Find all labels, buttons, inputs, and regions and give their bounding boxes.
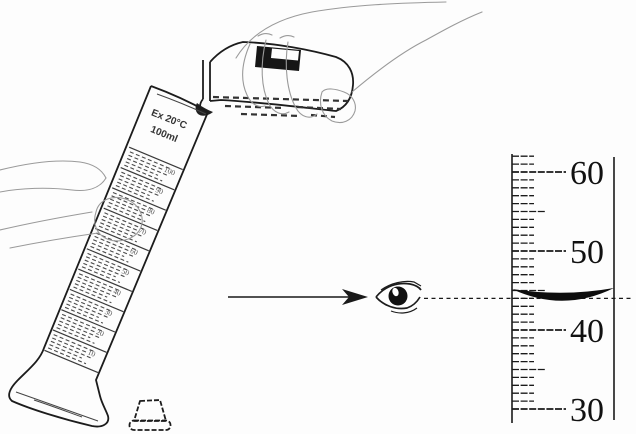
diagram-svg: 100908070605040302010 Ex 20°C 100ml <box>0 0 636 434</box>
scale-ticks <box>512 156 566 409</box>
svg-text:50: 50 <box>570 234 604 271</box>
measuring-cylinder-diagram: 100908070605040302010 Ex 20°C 100ml <box>0 0 636 434</box>
magnified-scale: 60504030 <box>512 154 614 429</box>
eye-icon <box>376 281 421 313</box>
reagent-bottle <box>196 42 354 117</box>
graduated-cylinder: 100908070605040302010 Ex 20°C 100ml <box>9 86 208 427</box>
sight-arrow <box>228 289 368 305</box>
svg-text:40: 40 <box>570 313 604 350</box>
svg-text:30: 30 <box>570 392 604 429</box>
svg-text:60: 60 <box>570 155 604 192</box>
holding-hand <box>0 161 142 248</box>
bottle-stopper <box>130 400 171 430</box>
